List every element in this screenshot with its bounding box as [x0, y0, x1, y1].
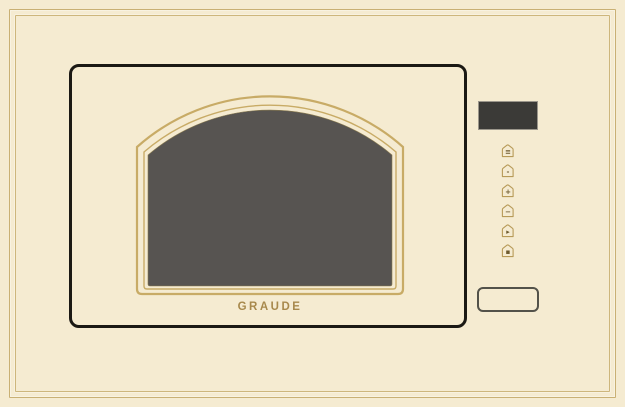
control-display	[478, 101, 538, 130]
control-button-column: ≡ - + − ▸	[500, 143, 517, 259]
brand-logo: GRAUDE	[130, 301, 410, 313]
minus-glyph: −	[500, 208, 516, 217]
minus-button[interactable]: −	[500, 203, 516, 219]
start-button[interactable]: ▸	[500, 223, 516, 239]
timer-glyph: ≡	[500, 148, 516, 157]
microwave-product-image: GRAUDE ≡ - + −	[0, 0, 625, 407]
door-window	[130, 90, 410, 300]
start-glyph: ▸	[500, 228, 516, 237]
door-open-button[interactable]	[477, 287, 539, 312]
window-glass	[148, 110, 392, 286]
stop-button[interactable]: ▪	[500, 243, 516, 259]
weight-button[interactable]: -	[500, 163, 516, 179]
timer-button[interactable]: ≡	[500, 143, 516, 159]
weight-glyph: -	[500, 168, 516, 177]
stop-glyph: ▪	[500, 248, 516, 257]
plus-button[interactable]: +	[500, 183, 516, 199]
plus-glyph: +	[500, 188, 516, 197]
